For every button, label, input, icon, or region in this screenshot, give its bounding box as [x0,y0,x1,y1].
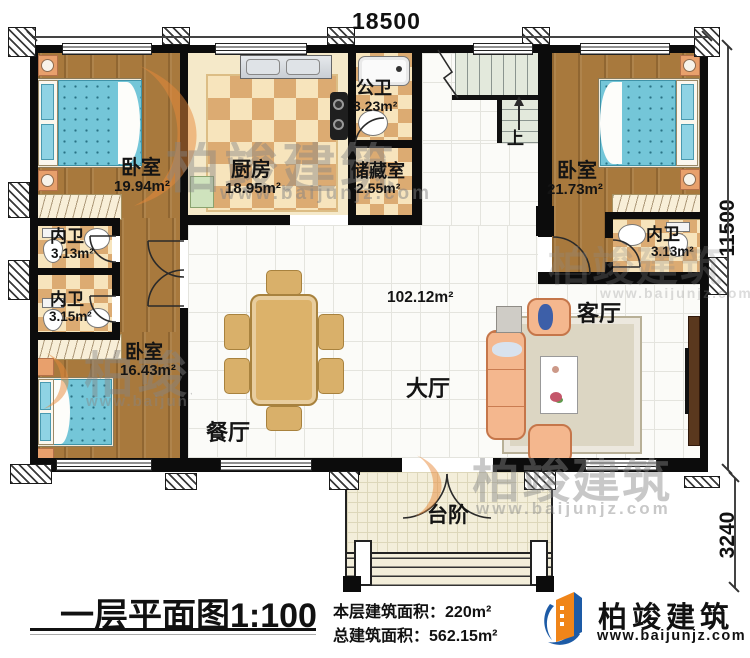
wall-baths-left-c [112,322,120,340]
storage-label: 储藏室 [351,162,405,180]
bedroom-tr-label: 卧室 [557,161,597,181]
window-top-kitchen [215,43,307,55]
wall-bedroom-tr-jamb [536,206,554,236]
coffee-table-decor-1 [552,366,559,373]
floor-area-value: 220m² [445,604,491,621]
bed-bl-pillow-1 [40,382,51,410]
pier-left-1 [8,182,30,218]
dining-chair-left-1 [224,314,250,350]
bed-bl-pillow-2 [40,413,51,441]
dining-chair-top [266,270,302,295]
stove-burner-2 [333,119,344,130]
kitchen-area: 18.95m² [225,181,281,196]
title-underline-thin [30,634,316,635]
pier-top-right-corner [694,27,720,57]
lamp-tr-bottom [683,173,696,186]
floor-area-label: 本层建筑面积： [333,604,445,621]
pier-bottom-2 [329,471,359,490]
porch-column-foot-left [343,576,361,592]
bed-tr-pillow-2 [681,124,694,160]
bathtub-drain [396,66,402,72]
bedroom-bl-label: 卧室 [125,343,163,362]
public-bath-label: 公卫 [356,79,392,97]
stairs-up-label: 上 [507,130,524,147]
window-top-bedroom-tr [580,43,670,55]
nightstand-bl-top [36,358,54,376]
bed-tl-pillow-1 [41,84,54,120]
steps-label: 台阶 [427,505,469,526]
side-table [496,306,522,333]
watermark-url-2: www.baijunjz.com [86,394,186,409]
floor-area-row: 本层建筑面积：220m² [333,598,491,622]
window-top-stairs [473,43,533,55]
bath-right-label: 内卫 [646,226,680,243]
wall-exterior-left [30,45,38,466]
brand-logo-icon [540,590,594,648]
bath-left-upper-label: 内卫 [50,228,84,245]
dimension-top: 18500 [352,10,421,33]
total-area-value: 562.15m² [429,628,498,645]
hall-label: 大厅 [406,378,450,400]
wall-kitchen-bottom-right [348,215,422,225]
bath-left-lower-area: 3.15m² [49,310,92,324]
bath-left-upper-area: 3.13m² [51,247,94,261]
dining-chair-right-2 [318,358,344,394]
storage-area: 2.55m² [356,181,400,195]
stairs-upper-flight [455,53,538,95]
title-underline-thick [30,628,316,631]
coffee-table-flowers [550,392,562,402]
left-corridor-floor [120,218,180,332]
bed-tr-pillow-1 [681,84,694,120]
dining-label: 餐厅 [206,422,250,444]
basin-right [618,224,646,246]
dimension-top-line [32,36,708,38]
porch-steps [345,554,553,586]
total-area-row: 总建筑面积：562.15m² [333,622,498,646]
wall-bath-ll-bottom [30,332,112,340]
window-bottom-dining [220,459,312,471]
floor-plan-canvas: 卧室 19.94m² 厨房 18.95m² 公卫 3.23m² 储藏室 2.55… [0,0,750,658]
dining-table [250,294,318,406]
window-top-bedroom-tl [62,43,152,55]
kitchen-label: 厨房 [231,160,271,180]
lamp-tr-top [683,59,696,72]
bed-tr-sheet [600,82,622,164]
tv-screen [685,348,689,414]
window-bottom-bedroom-bl [56,459,152,471]
wall-bedroom-tl-bottom [30,218,120,226]
wall-baths-left-a [112,218,120,236]
coffee-table [540,356,578,414]
hall-area: 102.12m² [387,290,453,306]
bedroom-tl-area: 19.94m² [114,179,170,194]
dimension-right-line [727,46,729,470]
watermark-text-4: 柏竣建筑 [548,246,724,288]
bath-right-area: 3.13m² [651,245,694,259]
wall-bath-right-top [605,212,700,219]
wall-bath-right-left-a [605,219,613,238]
wall-baths-left-divider [30,268,112,275]
pier-bottom-right-corner [684,476,720,488]
dimension-bottom-right-line [734,478,736,588]
sink-basin-1 [246,59,280,75]
pier-left-2 [8,260,30,300]
public-bath-area: 3.23m² [353,99,397,113]
porch-column-foot-right [536,576,554,592]
bedroom-tr-area: 21.73m² [547,182,603,197]
pier-top-left-corner [8,27,36,57]
watermark-text-3: 柏竣建筑 [472,458,672,506]
tv-cabinet [688,316,700,446]
hall-upper-floor [422,143,538,225]
dining-chair-left-2 [224,358,250,394]
stairs-railing-v [497,95,502,143]
dining-chair-right-1 [318,314,344,350]
wall-kitchen-bottom-left [180,215,290,225]
person-lying [492,342,522,357]
wall-baths-left-b [112,262,120,296]
person-sitting [538,304,553,330]
bedroom-bl-area: 16.43m² [120,363,176,378]
dining-chair-bottom [266,406,302,431]
stairs-railing-h [452,95,538,100]
bath-left-lower-label: 内卫 [50,291,84,308]
brand-website: www.baijunjz.com [597,628,746,644]
living-label: 客厅 [577,303,621,325]
wardrobe-tl [36,194,122,220]
pier-bottom-left-corner [10,464,52,484]
lamp-tl-top [41,59,54,72]
stove-burner-1 [333,99,344,110]
bed-tl-pillow-2 [41,124,54,160]
lamp-tl-bottom [41,174,54,187]
bedroom-tl-label: 卧室 [121,158,161,178]
watermark-url-3: www.baijunjz.com [476,500,671,517]
total-area-label: 总建筑面积： [333,628,429,645]
sink-basin-2 [286,59,320,75]
pier-bottom-1 [165,473,197,490]
